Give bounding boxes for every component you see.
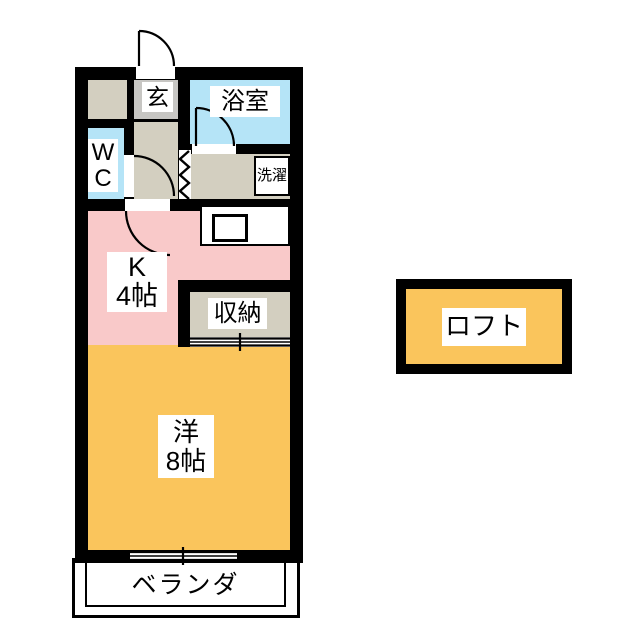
toilet-label-line2: C [94,166,111,192]
laundry-label: 洗濯 [257,168,287,184]
floorplan-canvas: { "floorplan": { "type": "japanese-apart… [0,0,640,640]
loft-label-box: ロフト [442,308,526,346]
corridor [134,122,178,199]
toilet-door-opening [124,155,134,197]
kitchen-label-box: K 4帖 [107,252,167,312]
toilet-label-line1: W [92,140,115,166]
veranda-inner-deck: ベランダ [85,558,286,607]
kitchen-label-line1: K [128,253,146,282]
laundry-label-box: 洗濯 [254,156,290,196]
entrance-label-box: 玄 [142,82,173,112]
storage-sliding-door [190,337,290,347]
entrance-door-opening [136,64,175,79]
bathroom-label-box: 浴室 [210,86,280,117]
bathroom-door-opening [192,144,236,154]
western-room-label-line2: 8帖 [166,447,206,475]
storage-label: 収納 [214,301,262,327]
kitchen-sink [212,214,248,242]
entrance-label: 玄 [146,85,169,110]
veranda-label: ベランダ [131,565,239,601]
accordion-door-strip [179,150,191,199]
balcony-window-opening [130,551,237,561]
western-room-label-box: 洋 8帖 [158,415,214,478]
room-loft: ロフト [396,279,572,374]
kitchen-door-opening [125,199,170,211]
kitchen-label-line2: 4帖 [116,282,158,311]
loft-label: ロフト [445,312,523,340]
western-room-label-line1: 洋 [173,418,199,446]
entry-side-area [88,80,127,119]
bathroom-label: 浴室 [221,89,269,115]
entrance-door-arc-icon [139,31,174,66]
storage-label-box: 収納 [208,298,267,329]
toilet-label-box: W C [88,139,118,192]
